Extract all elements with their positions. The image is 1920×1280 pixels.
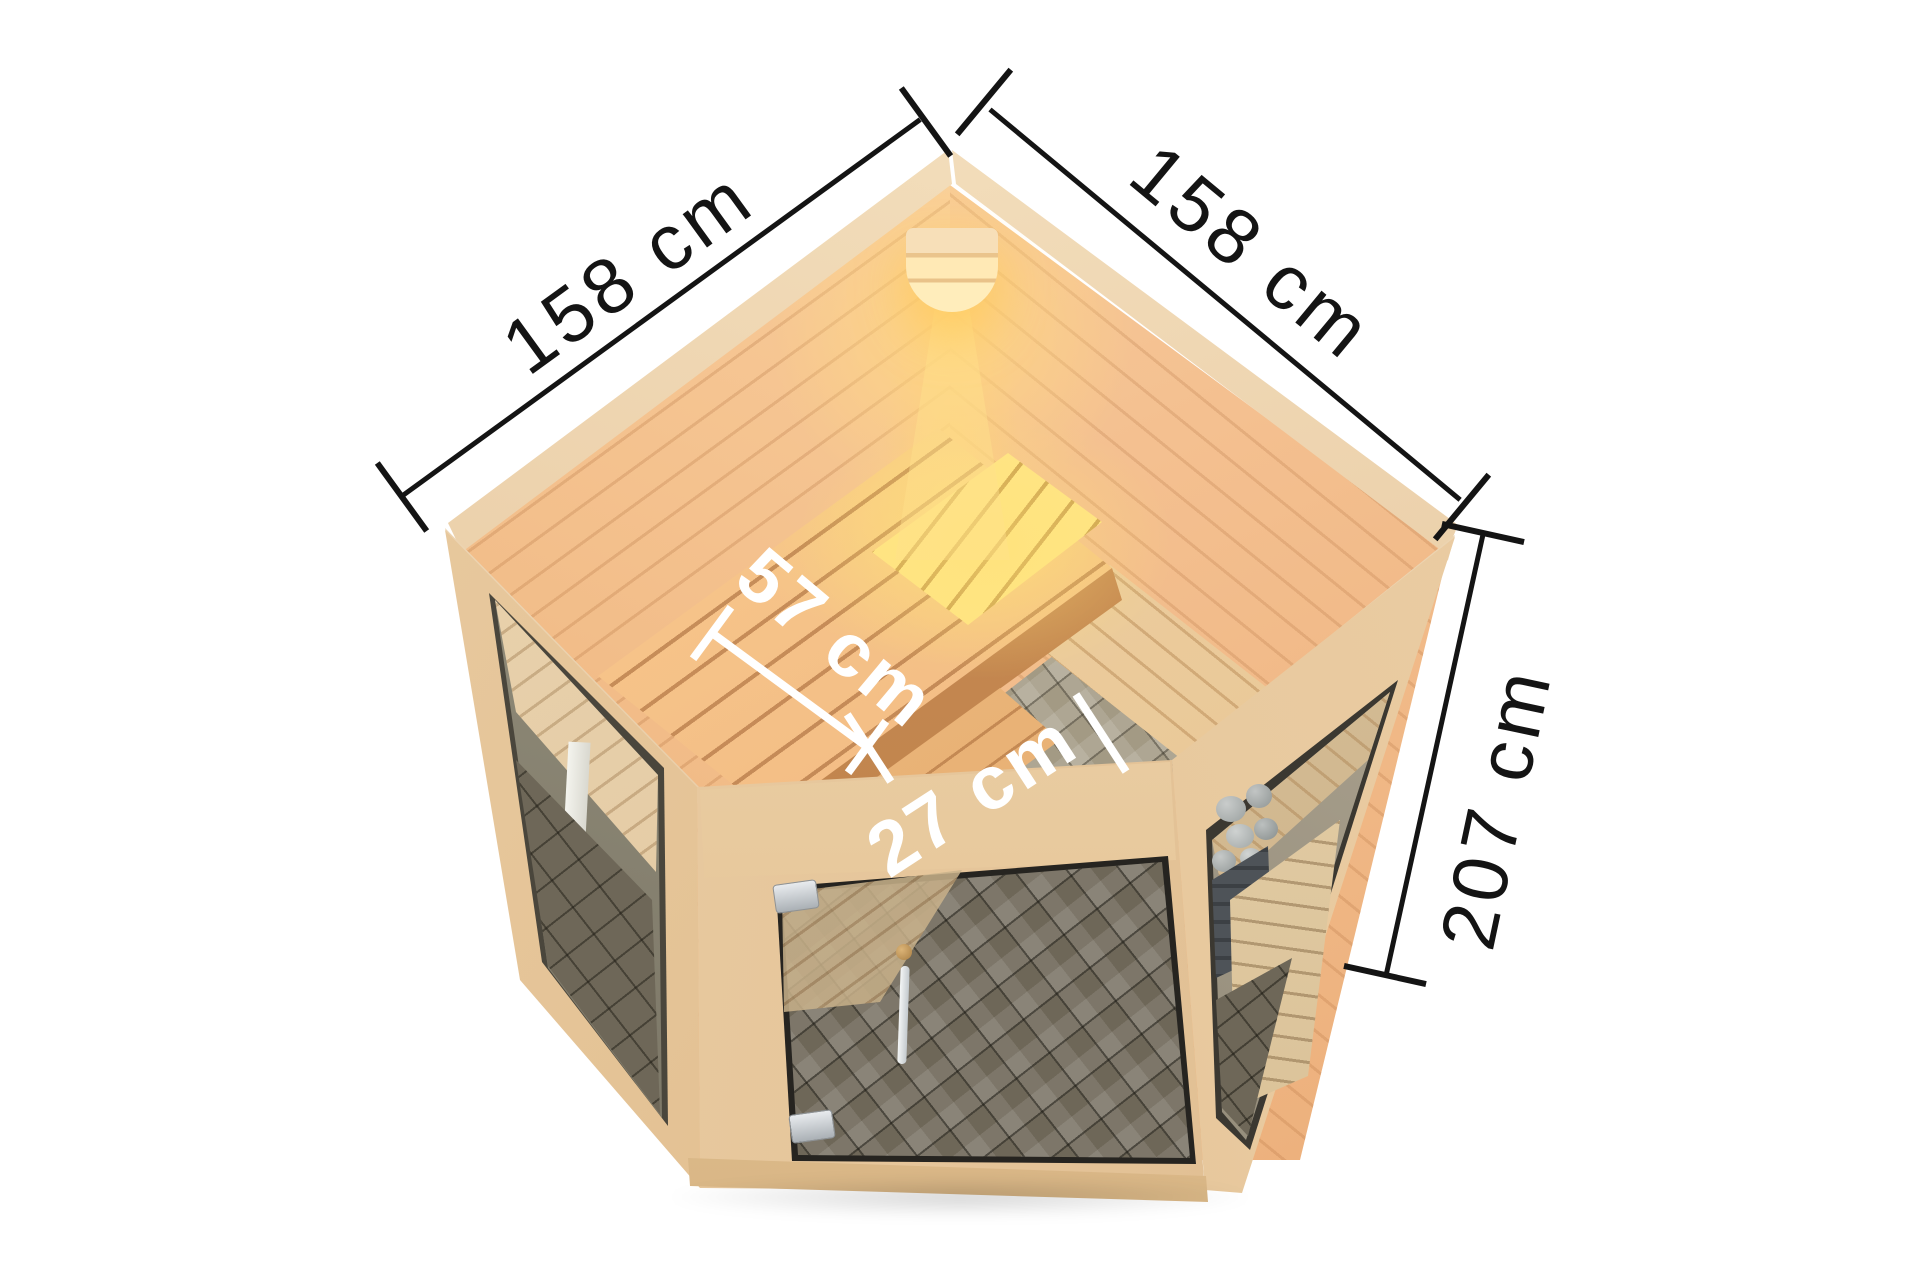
door-hinge-bottom-icon xyxy=(788,1109,836,1144)
heater-stone xyxy=(1246,784,1272,808)
dim-tick xyxy=(375,461,429,532)
dim-tick xyxy=(955,68,1013,136)
heater-stone xyxy=(1254,818,1278,840)
ground-shadow xyxy=(660,1176,1260,1218)
heater-stone xyxy=(1226,824,1254,848)
heater-stone xyxy=(1216,796,1246,822)
dim-tick xyxy=(899,86,953,157)
door-hinge-top-icon xyxy=(772,879,820,914)
sauna-product-render: 158 cm 158 cm 207 cm 57 cm 27 cm xyxy=(0,0,1920,1280)
door-handle-knob xyxy=(896,944,912,960)
